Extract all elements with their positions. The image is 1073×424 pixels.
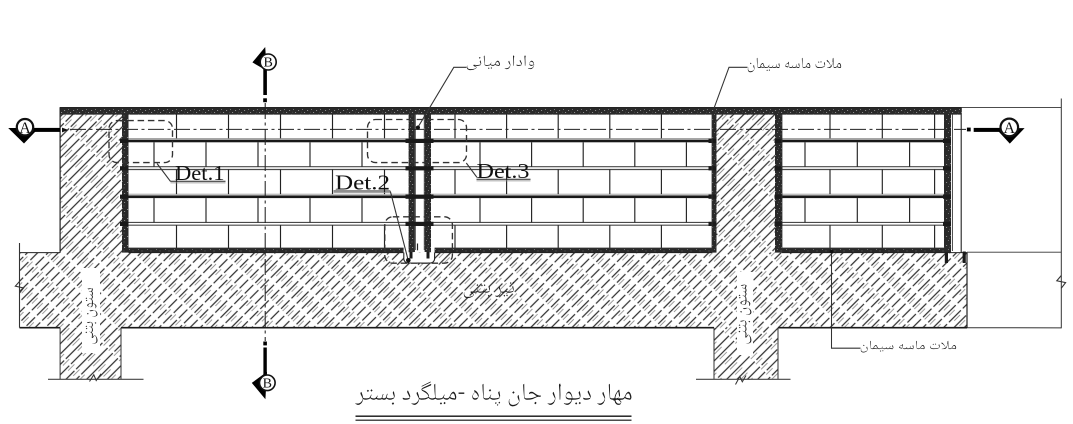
svg-text:A: A: [19, 120, 31, 137]
svg-text:B: B: [263, 376, 272, 391]
svg-text:B: B: [264, 56, 273, 71]
svg-text:A: A: [1004, 120, 1016, 137]
